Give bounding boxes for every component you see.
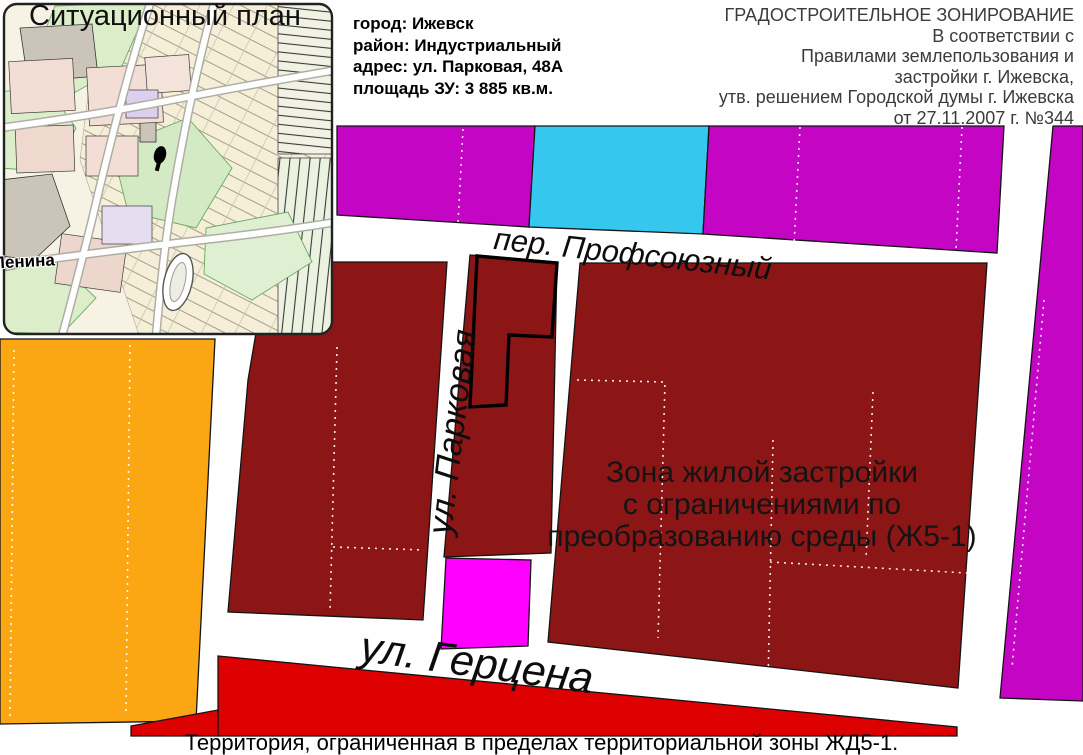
inset-map-art (0, 0, 336, 338)
zone-magenta-east-column (1000, 126, 1083, 701)
zoning-header-line1: В соответствии с (719, 26, 1074, 47)
zoning-header-block: ГРАДОСТРОИТЕЛЬНОЕ ЗОНИРОВАНИЕ В соответс… (719, 5, 1074, 129)
inset-map-canvas (0, 0, 336, 338)
zone-cyan-north (529, 126, 709, 234)
site-info-district: район: Индустриальный (353, 35, 563, 57)
zoning-header-line3: застройки г. Ижевска, (719, 67, 1074, 88)
zone-label-line3: преобразованию среды (Ж5-1) (547, 521, 976, 553)
zoning-header-title: ГРАДОСТРОИТЕЛЬНОЕ ЗОНИРОВАНИЕ (719, 5, 1074, 26)
site-info-block: город: Ижевск район: Индустриальный адре… (353, 13, 563, 99)
map-caption: Территория, ограниченная в пределах терр… (0, 730, 1083, 755)
site-info-area: площадь ЗУ: 3 885 кв.м. (353, 78, 563, 100)
zoning-map-page: пер. Профсоюзный ул. Парковая ул. Герцен… (0, 0, 1083, 755)
zoning-header-line2: Правилами землепользования и (719, 46, 1074, 67)
zone-label-line2: с ограничениями по (547, 489, 976, 521)
zone-magenta-northeast (703, 126, 1004, 253)
zone-label: Зона жилой застройки с ограничениями по … (547, 457, 976, 553)
inset-title: Ситуационный план (29, 0, 301, 33)
zone-label-line1: Зона жилой застройки (547, 457, 976, 489)
situational-plan-inset: Ситуационный план Ленина (0, 0, 336, 338)
site-info-address: адрес: ул. Парковая, 48А (353, 56, 563, 78)
site-info-city: город: Ижевск (353, 13, 563, 35)
zone-magenta-northwest (337, 126, 535, 227)
zone-orange-west (0, 339, 215, 724)
street-label-lenina: Ленина (0, 250, 55, 273)
zoning-header-line5: от 27.11.2007 г. №344 (719, 108, 1074, 129)
zoning-header-line4: утв. решением Городской думы г. Ижевска (719, 87, 1074, 108)
